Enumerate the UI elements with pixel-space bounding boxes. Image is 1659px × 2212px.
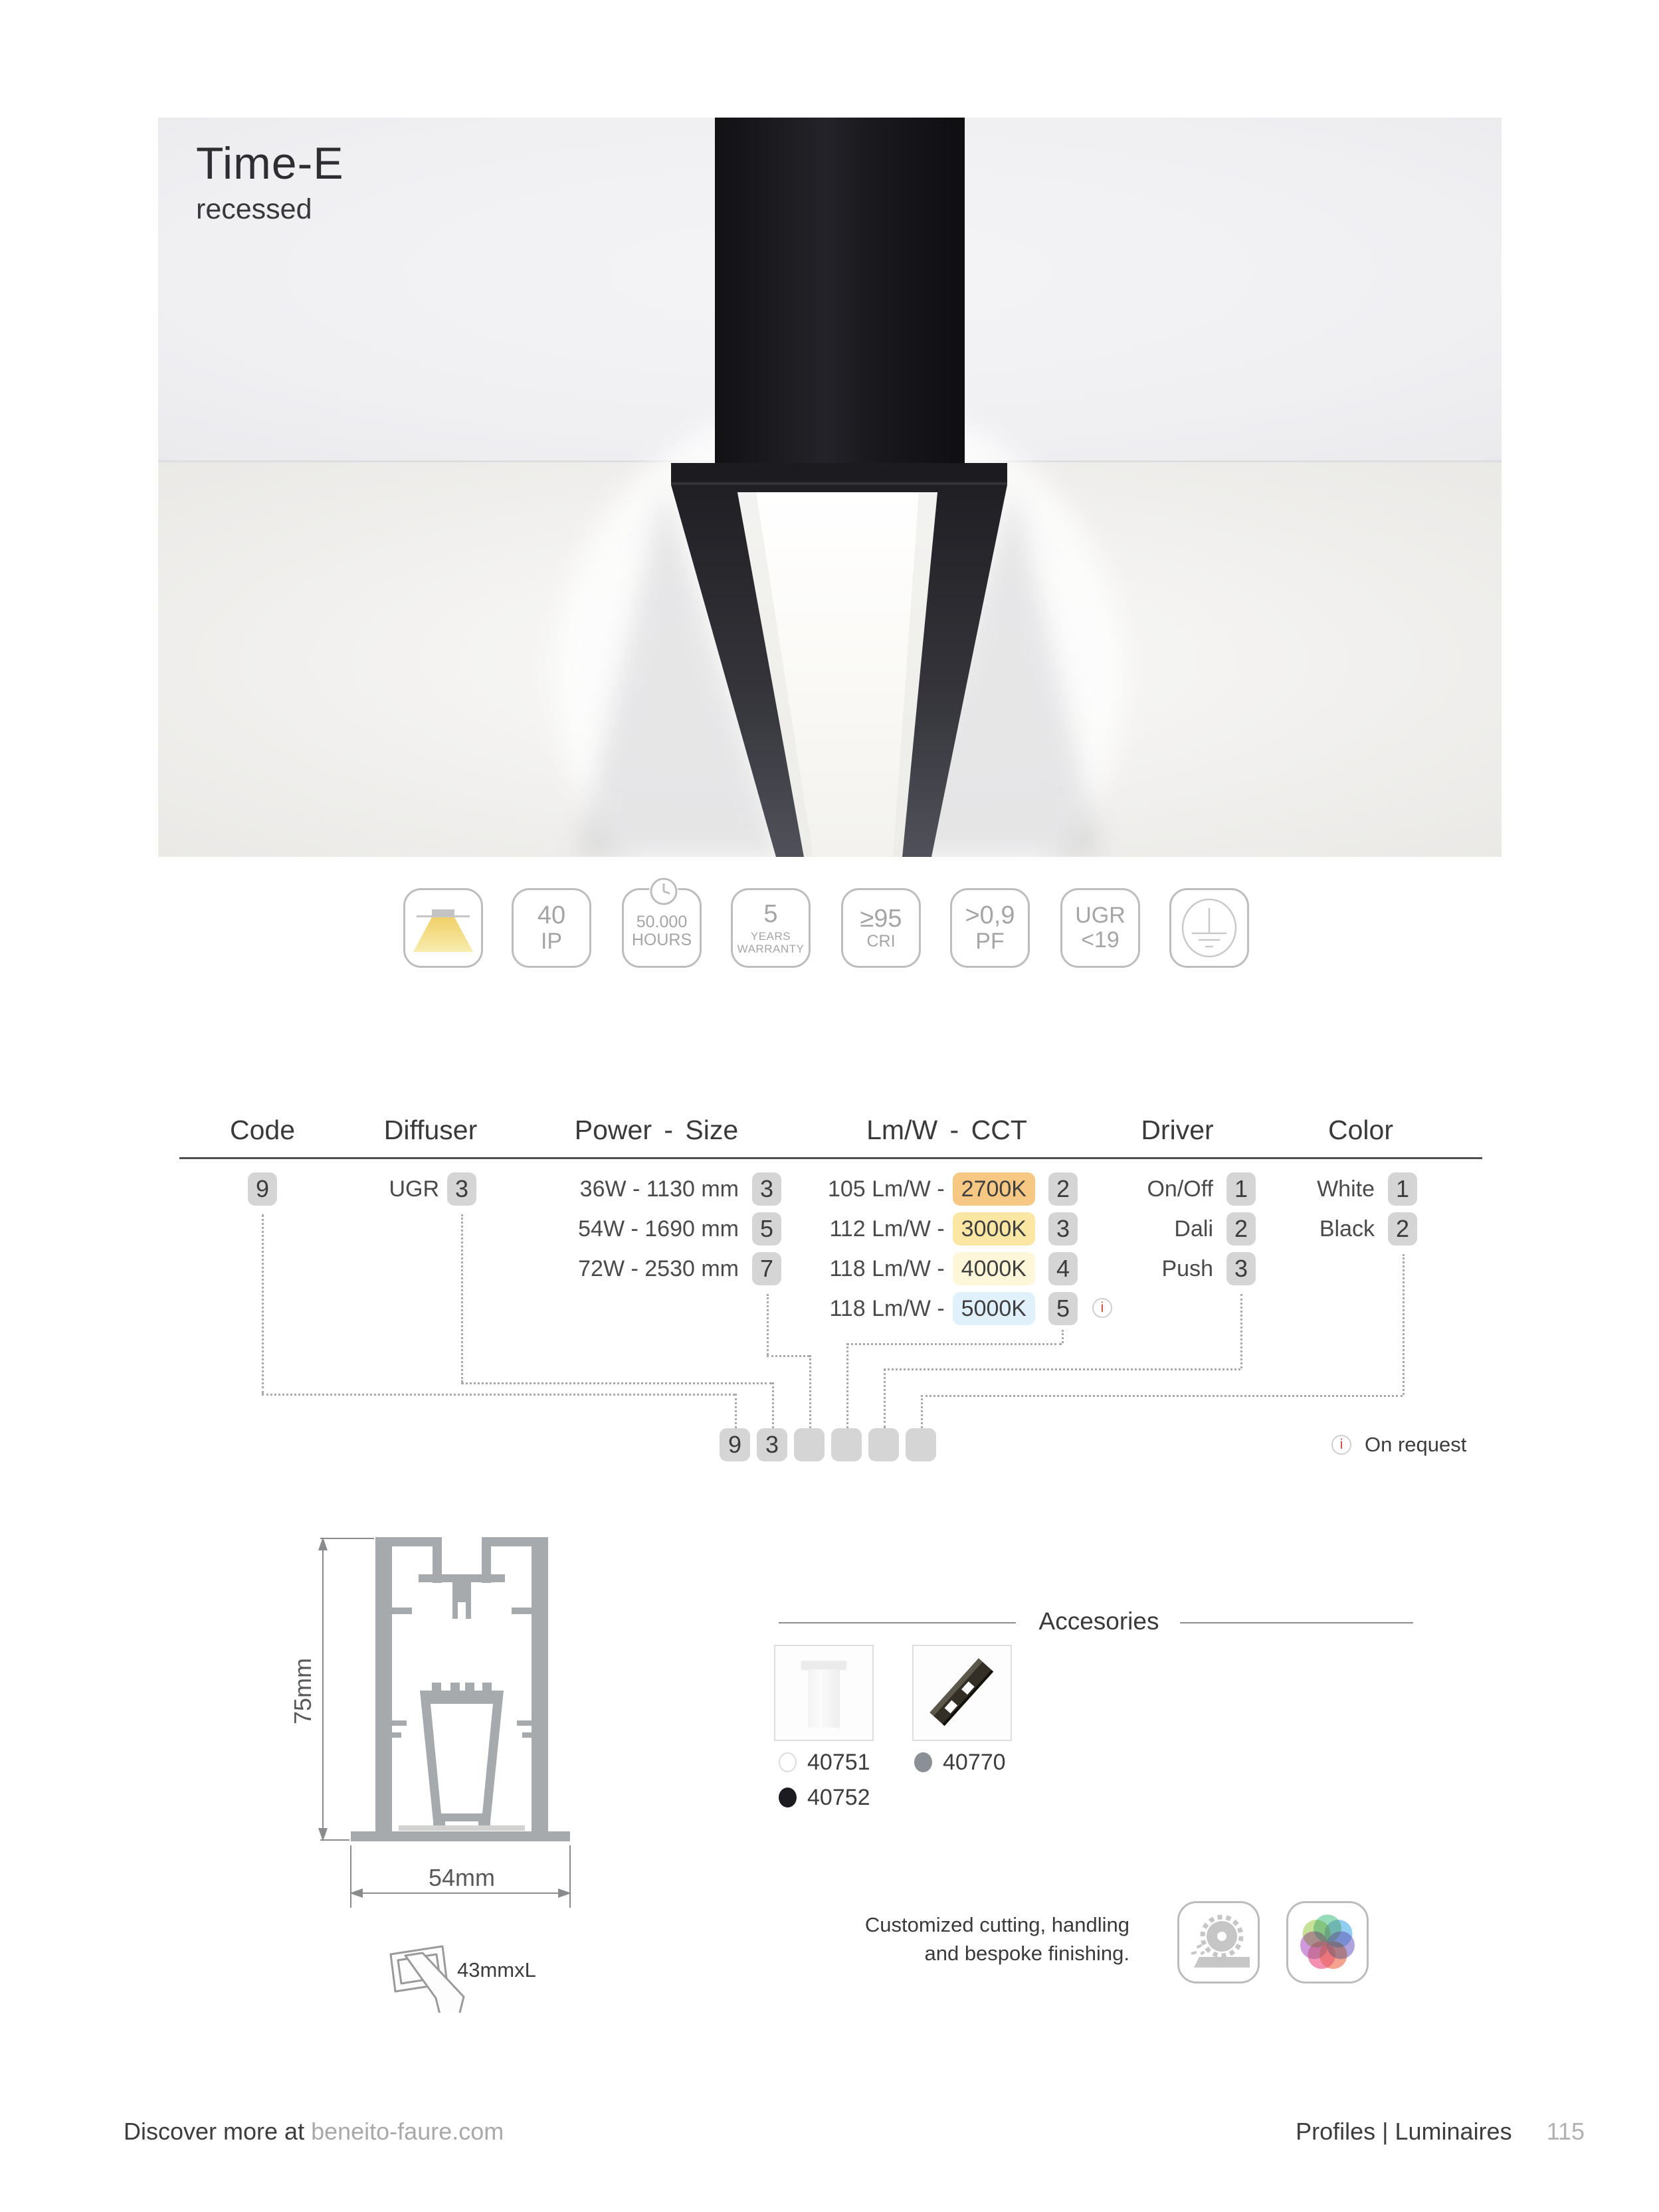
driver-option-code-box: 3 [1226,1252,1256,1285]
driver-option-label: Dali [1174,1216,1213,1242]
ground-earth-icon [1177,896,1241,960]
driver-option-label: Push [1162,1256,1214,1282]
accessories-title: Accesories [1029,1608,1169,1635]
info-icon: i [1092,1298,1112,1318]
badge-cri-label: CRI [866,933,895,951]
badge-ugr-label: UGR [1075,903,1125,928]
power-option-row: 54W - 1690 mm 5 [578,1212,781,1245]
lmw-option-label: 118 Lm/W - [829,1296,944,1322]
badge-ip-label: IP [541,929,562,954]
driver-option-row: Dali 2 [1174,1212,1256,1245]
accessory-item: 40752 [779,1784,870,1811]
connector-line [846,1343,1062,1345]
badge-hours: 50.000 HOURS [622,888,702,968]
connector-line [461,1214,463,1382]
power-option-code-box: 7 [752,1252,781,1285]
column-header-power: Power - Size [550,1115,763,1146]
badge-cri-value: ≥95 [860,905,902,933]
cct-highlight: 4000K [953,1252,1035,1285]
driver-option-code-box: 2 [1226,1212,1256,1245]
accessory-code: 40751 [807,1750,870,1776]
accessories-divider-left [779,1622,1016,1623]
connector-line [809,1355,811,1428]
accessory-code: 40770 [943,1750,1006,1776]
badge-ground [1169,888,1249,968]
driver-option-label: On/Off [1147,1176,1213,1202]
badge-ugr: UGR <19 [1060,888,1140,968]
power-option-label: 54W - 1690 mm [578,1216,739,1242]
on-request-label: On request [1365,1433,1466,1457]
connector-line [262,1394,735,1396]
column-header-driver: Driver [1071,1115,1284,1146]
on-request-legend: i On request [1331,1429,1466,1460]
driver-option-row: Push 3 [1162,1252,1256,1285]
color-option-row: White 1 [1317,1172,1417,1206]
driver-option-code-box: 1 [1226,1172,1256,1206]
color-option-code-box: 1 [1388,1172,1417,1206]
page-title: Time-E [196,141,344,186]
profile-cross-section-drawing [266,1521,598,2013]
power-option-label: 36W - 1130 mm [580,1176,739,1202]
connector-line [767,1355,809,1357]
column-header-diffuser: Diffuser [324,1115,537,1146]
info-icon: i [1331,1435,1351,1455]
badge-cri: ≥95 CRI [841,888,921,968]
color-option-row: Black 2 [1319,1212,1417,1245]
badge-pf: >0,9 PF [950,888,1030,968]
lmw-option-label: 112 Lm/W - [829,1216,944,1242]
swatch-gray [914,1752,932,1772]
badge-pf-label: PF [975,929,1004,954]
lmw-option-row: 118 Lm/W - 5000K 5 [829,1292,1078,1325]
lmw-option-info: i [1092,1298,1112,1318]
connector-line [846,1343,848,1428]
badge-ip-value: 40 [537,902,565,929]
catalog-page: Time-E recessed 40 IP 50.000 HOURS 5 YEA… [0,0,1659,2212]
services-line1: Customized cutting, handling [865,1910,1129,1939]
diffuser-cell: UGR 3 [389,1172,476,1206]
connector-line [1403,1254,1405,1395]
code-cell: 9 [248,1172,277,1206]
connector-line [461,1382,772,1384]
driver-option-row: On/Off 1 [1147,1172,1256,1206]
badge-warranty: 5 YEARS WARRANTY [731,888,811,968]
footer-website-link[interactable]: beneito-faure.com [311,2118,504,2145]
cut-length-label: 43mmxL [457,1958,536,1982]
connector-line [884,1368,886,1428]
builder-box-diffuser: 3 [757,1428,787,1461]
page-subtitle: recessed [196,195,344,224]
footer-left: Discover more at beneito-faure.com [124,2118,504,2146]
connector-line [1062,1330,1064,1343]
builder-box-driver [868,1428,899,1461]
connector-line [735,1394,737,1428]
circular-saw-icon [1182,1906,1255,1978]
color-option-code-box: 2 [1388,1212,1417,1245]
accessory-item: 40770 [914,1749,1006,1776]
badge-finishing-service [1286,1901,1369,1983]
power-option-code-box: 3 [752,1172,781,1206]
services-text: Customized cutting, handling and bespoke… [865,1910,1129,1968]
bracket-photo [914,1646,1011,1740]
column-header-color: Color [1254,1115,1467,1146]
footer-section-label: Profiles | Luminaires [1296,2118,1512,2145]
lmw-option-row: 118 Lm/W - 4000K 4 [829,1252,1078,1285]
connector-line [1240,1294,1242,1368]
product-title-block: Time-E recessed [196,141,344,224]
lmw-option-label: 118 Lm/W - [829,1256,944,1282]
cct-highlight: 2700K [953,1172,1035,1206]
lmw-option-code-box: 4 [1048,1252,1078,1285]
badge-ugr-value: <19 [1081,928,1120,953]
accessories-divider-right [1180,1622,1413,1623]
badge-warranty-label2: WARRANTY [737,943,805,955]
lmw-option-code-box: 2 [1048,1172,1078,1206]
connector-line [921,1395,923,1428]
badge-warranty-value: 5 [763,901,777,928]
lmw-option-code-box: 5 [1048,1292,1078,1325]
cct-highlight: 5000K [953,1292,1035,1325]
badge-cutting-service [1177,1901,1260,1983]
hero-photo [158,118,1502,857]
badge-hours-value: 50.000 [636,913,687,931]
badge-pf-value: >0,9 [965,902,1015,929]
builder-box-power [794,1428,825,1461]
color-wheel-icon [1292,1906,1363,1978]
connector-line [772,1382,774,1428]
accessory-image-endcap [774,1645,874,1741]
diffuser-label: UGR [389,1176,439,1202]
code-value-box: 9 [248,1172,277,1206]
cut-to-size-icon [391,1946,464,2013]
connector-line [767,1294,769,1355]
badge-ip: 40 IP [512,888,591,968]
page-number: 115 [1547,2118,1585,2145]
builder-box-lmw [831,1428,862,1461]
lmw-option-row: 112 Lm/W - 3000K 3 [829,1212,1078,1245]
power-option-code-box: 5 [752,1212,781,1245]
power-option-label: 72W - 2530 mm [578,1256,739,1282]
lmw-option-row: 105 Lm/W - 2700K 2 [828,1172,1078,1206]
footer-right: Profiles | Luminaires 115 [1296,2118,1585,2146]
color-option-label: White [1317,1176,1375,1202]
services-line2: and bespoke finishing. [865,1939,1129,1968]
connector-line [884,1368,1240,1370]
builder-box-color [906,1428,936,1461]
accessory-item: 40751 [779,1749,870,1776]
recessed-light-icon [413,902,474,954]
header-rule [179,1157,1482,1159]
column-header-lmw: Lm/W - CCT [840,1115,1053,1146]
cct-highlight: 3000K [953,1212,1035,1245]
power-option-row: 72W - 2530 mm 7 [578,1252,781,1285]
color-option-label: Black [1319,1216,1375,1242]
accessory-image-bracket [912,1645,1012,1741]
lmw-option-label: 105 Lm/W - [828,1176,945,1202]
badge-hours-label: HOURS [632,931,692,949]
diffuser-value-box: 3 [447,1172,476,1206]
swatch-white [779,1752,797,1772]
swatch-black [779,1788,797,1807]
accessory-code: 40752 [807,1785,870,1811]
badge-warranty-label1: YEARS [751,931,791,943]
connector-line [921,1395,1403,1397]
dimension-height-label: 75mm [289,1651,317,1731]
dimension-width-label: 54mm [419,1864,505,1892]
badge-recessed [403,888,483,968]
power-option-row: 36W - 1130 mm 3 [580,1172,781,1206]
clock-icon [649,877,678,906]
lmw-option-code-box: 3 [1048,1212,1078,1245]
connector-line [262,1214,264,1394]
footer-left-text: Discover more at [124,2118,311,2145]
builder-box-code: 9 [720,1428,750,1461]
